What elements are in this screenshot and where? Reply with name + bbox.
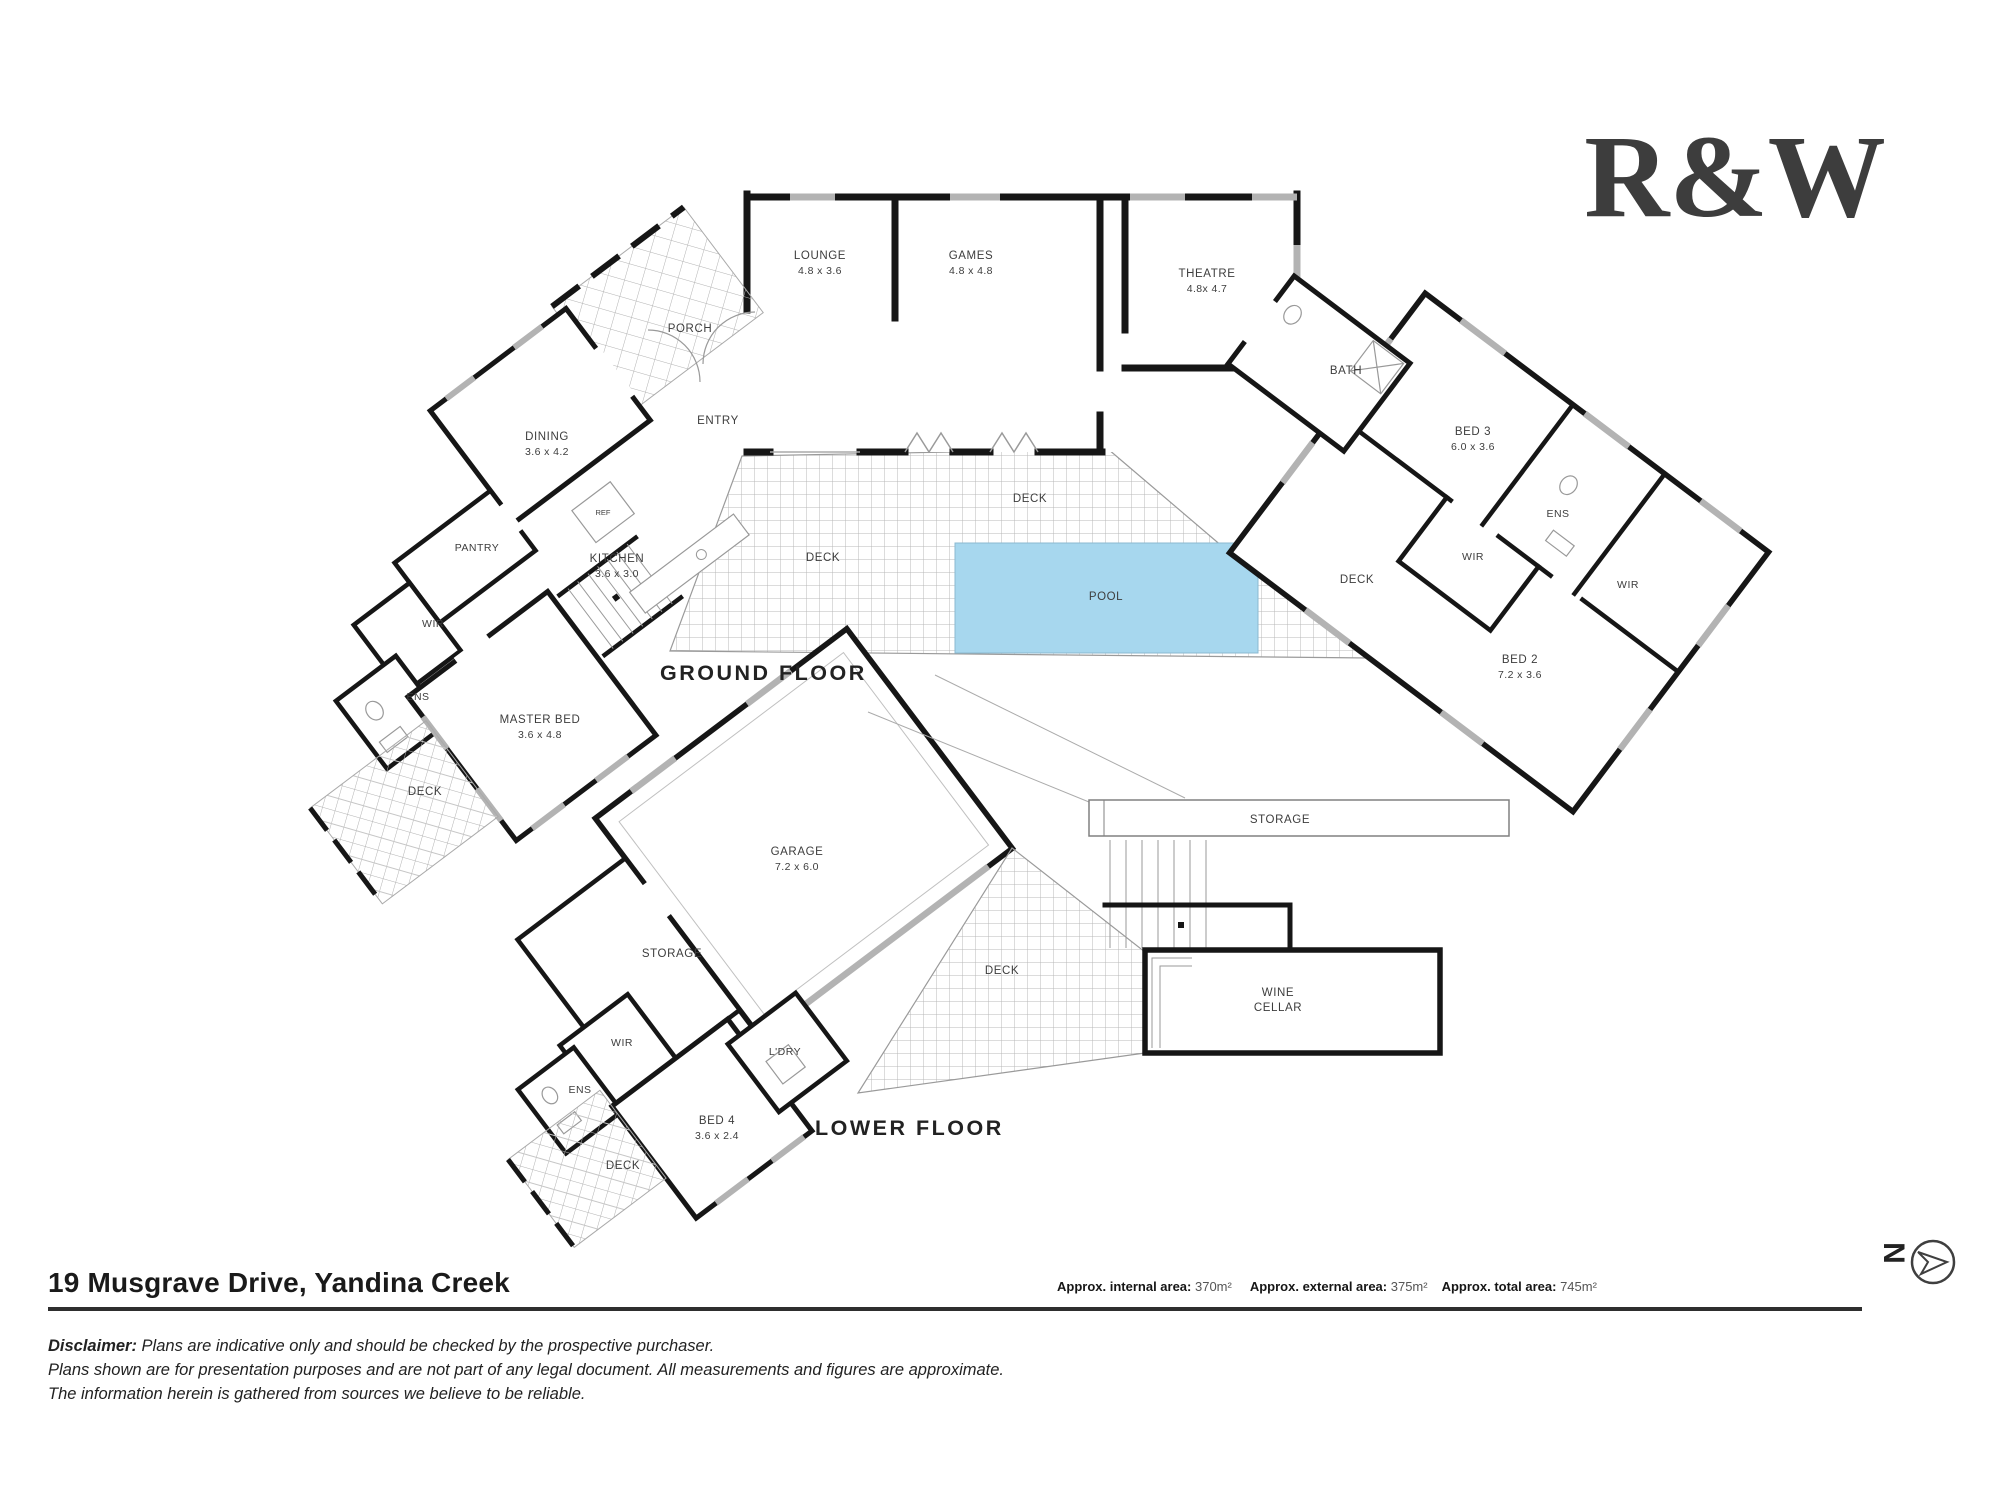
label-master-bed: MASTER BED [500, 714, 581, 726]
label-porch: PORCH [668, 323, 713, 335]
label-kitchen: KITCHEN [590, 553, 645, 565]
label-lounge: LOUNGE [794, 250, 846, 262]
disclaimer-line3: The information herein is gathered from … [48, 1385, 585, 1403]
area-summary: Approx. internal area: 370m²Approx. exte… [1057, 1279, 1598, 1294]
label-wir-lower: WIR [611, 1037, 633, 1049]
label-bath: BATH [1330, 365, 1362, 377]
label-bed3: BED 3 [1455, 426, 1491, 438]
label-bed2: BED 2 [1502, 654, 1538, 666]
lower-floor-title: LOWER FLOOR [815, 1116, 1004, 1140]
dims-garage: 7.2 x 6.0 [775, 861, 819, 873]
top-block [747, 194, 1297, 452]
label-games: GAMES [949, 250, 994, 262]
stairs-lower [1105, 840, 1290, 950]
label-wir-bed2: WIR [1617, 579, 1639, 591]
floorplan-drawing: LOUNGE 4.8 x 3.6 GAMES 4.8 x 4.8 THEATRE… [0, 0, 2000, 1500]
label-deck-bed4: DECK [606, 1160, 640, 1172]
compass-arrow-icon [1918, 1252, 1947, 1274]
disclaimer-text1: Plans are indicative only and should be … [137, 1337, 714, 1355]
label-wir-master: WIR [422, 618, 444, 630]
total-area-value: 745m² [1560, 1279, 1598, 1294]
label-wine-line1: WINE [1262, 987, 1294, 999]
label-wine-line2: CELLAR [1254, 1002, 1302, 1014]
label-deck-left: DECK [806, 552, 840, 564]
label-deck-master: DECK [408, 786, 442, 798]
total-area-label: Approx. total area: [1442, 1279, 1560, 1294]
north-compass: N [1877, 1241, 1954, 1283]
external-area-value: 375m² [1391, 1279, 1429, 1294]
dims-bed4: 3.6 x 2.4 [695, 1130, 739, 1142]
dims-bed3: 6.0 x 3.6 [1451, 441, 1495, 453]
dims-master-bed: 3.6 x 4.8 [518, 729, 562, 741]
dims-kitchen: 3.6 x 3.0 [595, 568, 639, 580]
dims-games: 4.8 x 4.8 [949, 265, 993, 277]
floorplan-page: LOUNGE 4.8 x 3.6 GAMES 4.8 x 4.8 THEATRE… [0, 0, 2000, 1500]
internal-area-label: Approx. internal area: [1057, 1279, 1195, 1294]
label-garage: GARAGE [771, 846, 824, 858]
dims-bed2: 7.2 x 3.6 [1498, 669, 1542, 681]
label-ref: REF [596, 508, 611, 517]
top-block-floor [747, 197, 1297, 452]
label-deck-top: DECK [1013, 493, 1047, 505]
label-wir-bed3: WIR [1462, 551, 1484, 563]
label-dining: DINING [525, 431, 569, 443]
label-theatre: THEATRE [1178, 268, 1235, 280]
rw-logo: R&W [1584, 111, 1886, 242]
dims-dining: 3.6 x 4.2 [525, 446, 569, 458]
footer-rule [48, 1307, 1862, 1311]
dims-lounge: 4.8 x 3.6 [798, 265, 842, 277]
external-area-label: Approx. external area: [1250, 1279, 1391, 1294]
label-bed4: BED 4 [699, 1115, 735, 1127]
ground-floor-title: GROUND FLOOR [660, 661, 867, 685]
label-ldry: L'DRY [769, 1046, 801, 1058]
label-ens-bed3: ENS [1546, 508, 1569, 520]
property-address: 19 Musgrave Drive, Yandina Creek [48, 1267, 510, 1298]
disclaimer-label: Disclaimer: [48, 1337, 137, 1355]
label-storage-right: STORAGE [1250, 814, 1310, 826]
label-pool: POOL [1089, 591, 1123, 603]
internal-area-value: 370m² [1195, 1279, 1233, 1294]
disclaimer-line1: Disclaimer: Plans are indicative only an… [48, 1337, 714, 1355]
label-deck-lower: DECK [985, 965, 1019, 977]
disclaimer-line2: Plans shown are for presentation purpose… [48, 1361, 1004, 1379]
label-ens-master: ENS [406, 691, 429, 703]
label-entry: ENTRY [697, 415, 739, 427]
label-ens-lower: ENS [568, 1084, 591, 1096]
label-pantry: PANTRY [455, 542, 500, 554]
dims-theatre: 4.8x 4.7 [1187, 283, 1228, 295]
north-letter: N [1877, 1242, 1910, 1264]
label-storage-lower: STORAGE [642, 948, 702, 960]
label-deck-right: DECK [1340, 574, 1374, 586]
